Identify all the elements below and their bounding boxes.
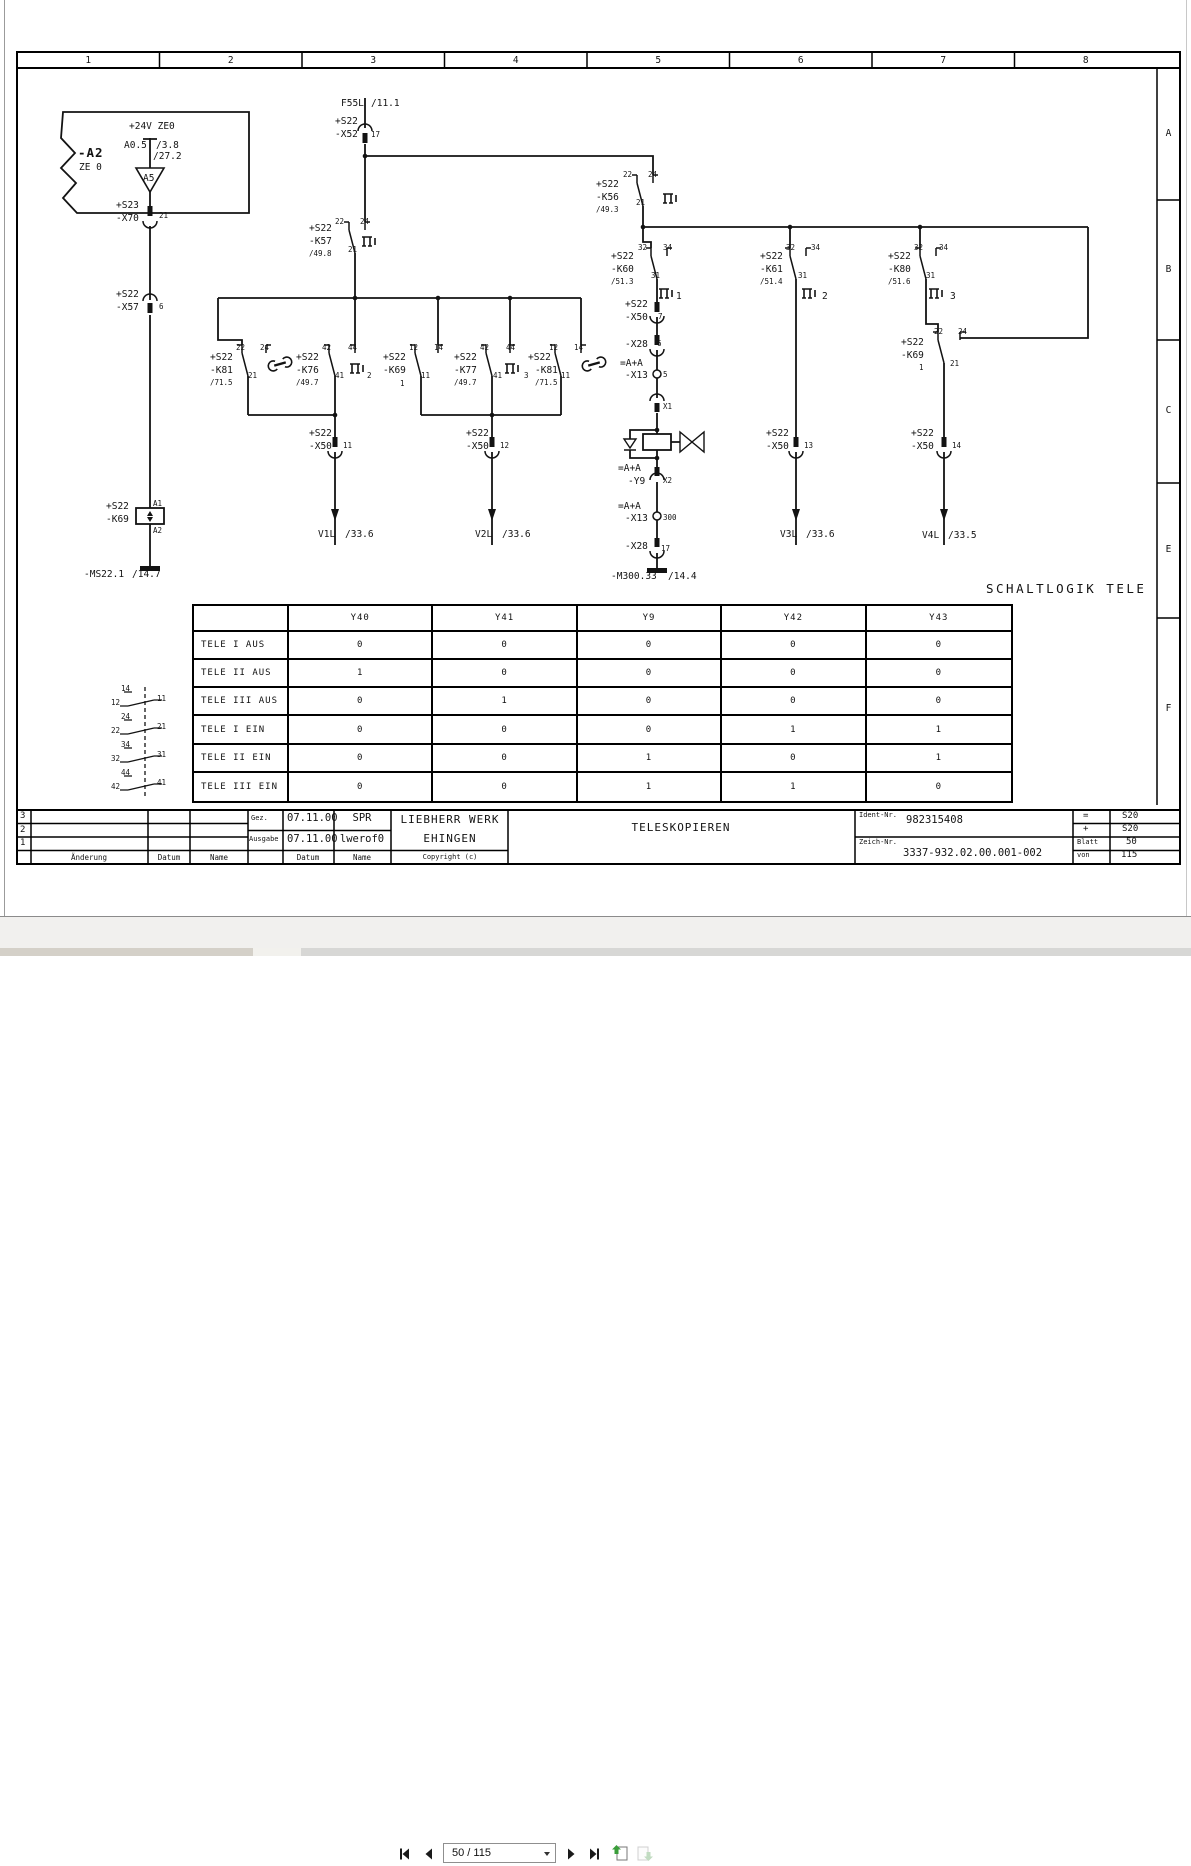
schematic-label: +S22	[383, 353, 406, 363]
ident-label: Ident-Nr.	[859, 812, 897, 819]
schematic-label: 5	[663, 371, 668, 379]
schematic-label: 32	[786, 244, 795, 252]
frame-column-5: 5	[587, 53, 730, 67]
schematic-label: V1L	[318, 530, 335, 540]
schematic-label: 24	[260, 344, 269, 352]
schematic-label: /51.3	[611, 278, 634, 286]
schematic-label: -K57	[309, 237, 332, 247]
schematic-label: 11	[157, 695, 166, 703]
schematic-label: 22	[236, 344, 245, 352]
frame-row-E: E	[1158, 544, 1179, 555]
schematic-label: -K61	[760, 265, 783, 275]
datum-header: Datum	[158, 854, 181, 862]
schematic-label: /49.7	[296, 379, 319, 387]
schematic-label: 11	[561, 372, 570, 380]
plus-label: +	[1083, 825, 1088, 834]
schematic-label: +S22	[766, 429, 789, 439]
schematic-label: -X28	[625, 542, 648, 552]
page-number-combobox[interactable]: 50 / 115	[443, 1843, 556, 1863]
logic-table-cell: 0	[433, 632, 577, 660]
revision-number: 3	[20, 812, 25, 821]
logic-table-cell: 0	[722, 660, 866, 688]
scrollbar-thumb[interactable]	[253, 948, 301, 956]
schematic-label: +S22	[466, 429, 489, 439]
logic-table-header	[194, 606, 289, 632]
schematic-label: +S22	[454, 353, 477, 363]
connector-symbols	[143, 124, 951, 558]
zeich-label: Zeich-Nr.	[859, 839, 897, 846]
schematic-label: 21	[159, 212, 168, 220]
logic-table-cell: 0	[289, 632, 433, 660]
schematic-label: -K69	[106, 515, 129, 525]
schematic-label: 22	[335, 218, 344, 226]
logic-table-row-label: TELE III EIN	[194, 773, 289, 801]
logic-table-cell: 0	[722, 745, 866, 773]
schematic-label: -X50	[309, 442, 332, 452]
logic-table-cell: 0	[289, 745, 433, 773]
schematic-label: V3L	[780, 530, 797, 540]
schematic-label: 44	[121, 769, 130, 777]
schematic-label: 11	[343, 442, 352, 450]
schematic-label: 24	[360, 218, 369, 226]
schematic-label: -K56	[596, 193, 619, 203]
schematic-label: 17	[371, 131, 380, 139]
logic-table-header: Y40	[289, 606, 433, 632]
schematic-label: 6	[159, 303, 164, 311]
logic-table-cell: 1	[867, 745, 1011, 773]
schematic-label: 41	[493, 372, 502, 380]
schematic-label: X1	[663, 403, 672, 411]
schematic-label: /33.5	[948, 531, 977, 541]
logic-table-cell: 0	[433, 716, 577, 744]
frame-column-3: 3	[302, 53, 445, 67]
logic-table-cell: 0	[867, 773, 1011, 801]
schematic-label: A1	[153, 500, 162, 508]
ausgabe-label: Ausgabe	[249, 836, 279, 843]
schematic-label: /27.2	[153, 152, 182, 162]
schematic-label: +S22	[116, 290, 139, 300]
schematic-label: 12	[111, 699, 120, 707]
schematic-label: 7	[658, 313, 663, 321]
schematic-label: 34	[811, 244, 820, 252]
schematic-label: 22	[934, 328, 943, 336]
schematic-label: -X50	[911, 442, 934, 452]
gez-name: SPR	[353, 813, 372, 824]
schematic-label: 41	[157, 779, 166, 787]
schematic-label: 34	[663, 244, 672, 252]
schematic-label: 12	[500, 442, 509, 450]
schematic-label: /33.6	[806, 530, 835, 540]
logic-table-cell: 0	[578, 716, 722, 744]
schematic-label: V2L	[475, 530, 492, 540]
schematic-label: 44	[506, 344, 515, 352]
scrollbar-track-left	[0, 948, 253, 956]
schematic-label: 42	[480, 344, 489, 352]
schematic-label: V4L	[922, 531, 939, 541]
schematic-label: =A+A	[618, 502, 641, 512]
schematic-label: +S22	[210, 353, 233, 363]
schematic-label: +S22	[911, 429, 934, 439]
schematic-label: -K69	[383, 366, 406, 376]
logic-table-cell: 0	[578, 688, 722, 716]
schematic-label: /49.7	[454, 379, 477, 387]
schematic-label: 21	[348, 246, 357, 254]
name-header: Name	[210, 854, 228, 862]
schematic-label: /49.3	[596, 206, 619, 214]
logic-table-cell: 0	[578, 660, 722, 688]
pdf-viewer-window: { "viewer": { "toolbar": { "page_field":…	[0, 0, 1191, 956]
first-page-button[interactable]	[397, 1846, 413, 1862]
scrollbar-track-right	[301, 948, 1191, 956]
schematic-label: 12	[409, 344, 418, 352]
schematic-label: 22	[111, 727, 120, 735]
schematic-label: -K76	[296, 366, 319, 376]
schematic-label: 21	[950, 360, 959, 368]
schematic-label: 3	[950, 292, 956, 302]
schaltlogik-title: SCHALTLOGIK TELE	[986, 581, 1146, 596]
schematic-label: +S22	[296, 353, 319, 363]
ausgabe-datum: 07.11.00	[287, 834, 338, 845]
logic-table-row-label: TELE I AUS	[194, 632, 289, 660]
schematic-label: 1	[400, 380, 405, 388]
schematic-label: /71.5	[210, 379, 233, 387]
schematic-label: +S22	[309, 429, 332, 439]
logic-table-cell: 0	[289, 773, 433, 801]
frame-column-6: 6	[730, 53, 873, 67]
schematic-label: +S22	[309, 224, 332, 234]
schematic-label: 14	[952, 442, 961, 450]
schematic-label: 1	[919, 364, 924, 372]
von-label: von	[1077, 852, 1090, 859]
logic-table-cell: 0	[578, 632, 722, 660]
last-page-button[interactable]	[586, 1846, 602, 1862]
schematic-label: +S22	[596, 180, 619, 190]
frame-column-7: 7	[872, 53, 1015, 67]
schematic-label: +S22	[625, 300, 648, 310]
aenderung-header: Änderung	[71, 854, 107, 862]
schematic-label: -X70	[116, 214, 139, 224]
ausgabe-name: lwerof0	[340, 834, 384, 845]
blatt-value: 50	[1126, 838, 1137, 847]
frame-row-A: A	[1158, 128, 1179, 139]
logic-table-row-label: TELE I EIN	[194, 716, 289, 744]
schematic-label: -K77	[454, 366, 477, 376]
schematic-label: 32	[914, 244, 923, 252]
schematic-label: -M300.33	[611, 572, 657, 582]
schematic-label: X2	[663, 477, 672, 485]
schematic-label: -X28	[625, 340, 648, 350]
schematic-label: 14	[574, 344, 583, 352]
logic-table-cell: 0	[433, 773, 577, 801]
schematic-label: -Y9	[628, 477, 645, 487]
schematic-label: +S22	[106, 502, 129, 512]
logic-table-header: Y43	[867, 606, 1011, 632]
blatt-label: Blatt	[1077, 839, 1098, 846]
schematic-label: =A+A	[618, 464, 641, 474]
schematic-label: 31	[157, 751, 166, 759]
logic-table-cell: 0	[867, 660, 1011, 688]
logic-table-cell: 1	[867, 716, 1011, 744]
previous-page-button[interactable]	[421, 1846, 437, 1862]
schematic-label: 17	[661, 545, 670, 553]
logic-table-row-label: TELE II EIN	[194, 745, 289, 773]
schematic-label: 24	[121, 713, 130, 721]
schematic-label: -MS22.1	[84, 570, 124, 580]
schematic-label: F55L	[341, 99, 364, 109]
logic-table-header: Y41	[433, 606, 577, 632]
datum-col-label: Datum	[297, 854, 320, 862]
schematic-label: 11	[421, 372, 430, 380]
logic-table-cell: 0	[722, 688, 866, 716]
frame-row-F: F	[1158, 703, 1179, 714]
company-line2: EHINGEN	[423, 833, 476, 844]
schematic-label: 42	[322, 344, 331, 352]
logic-table-cell: 1	[722, 716, 866, 744]
schematic-label: +S22	[760, 252, 783, 262]
schematic-label: /33.6	[502, 530, 531, 540]
logic-table-cell: 0	[722, 632, 866, 660]
schematic-label: -X50	[466, 442, 489, 452]
schematic-label: 24	[648, 171, 657, 179]
schematic-label: +S22	[335, 117, 358, 127]
schematic-label: +S22	[528, 353, 551, 363]
schematic-label: 24	[958, 328, 967, 336]
schematic-label: 44	[348, 344, 357, 352]
ground-symbols	[140, 566, 667, 573]
schematic-label: -A2	[78, 147, 104, 160]
schematic-label: -X57	[116, 303, 139, 313]
schematic-label: -X13	[625, 371, 648, 381]
schematic-label: /14.7	[132, 570, 161, 580]
logic-table-cell: 1	[578, 745, 722, 773]
schematic-label: 22	[623, 171, 632, 179]
schematic-label: 12	[549, 344, 558, 352]
schematic-label: -X50	[625, 313, 648, 323]
logic-table-row-label: TELE III AUS	[194, 688, 289, 716]
schematic-label: 6	[657, 340, 662, 348]
schematic-label: -K81	[535, 366, 558, 376]
revision-number: 2	[20, 826, 25, 835]
schematic-label: -X52	[335, 130, 358, 140]
logic-table-cell: 1	[289, 660, 433, 688]
page-edge-right	[1186, 0, 1187, 916]
frame-column-2: 2	[160, 53, 303, 67]
schematic-label: +24V ZE0	[129, 122, 175, 132]
logic-table-cell: 0	[289, 716, 433, 744]
eq-label: =	[1083, 812, 1088, 821]
schematic-label: 14	[121, 685, 130, 693]
next-view-button[interactable]	[635, 1844, 655, 1862]
schematic-label: 31	[926, 272, 935, 280]
logic-table-cell: 0	[433, 660, 577, 688]
frame-row-B: B	[1158, 264, 1179, 275]
schematic-label: -K60	[611, 265, 634, 275]
schematic-label: -X50	[766, 442, 789, 452]
schematic-label: /33.6	[345, 530, 374, 540]
logic-table-row-label: TELE II AUS	[194, 660, 289, 688]
schematic-label: +S22	[888, 252, 911, 262]
next-page-button[interactable]	[563, 1846, 579, 1862]
schematic-label: ZE 0	[79, 163, 102, 173]
schematic-label: -K69	[901, 351, 924, 361]
schematic-label: -K81	[210, 366, 233, 376]
company-line1: LIEBHERR WERK	[400, 814, 499, 825]
page-edge-left	[4, 0, 5, 916]
von-value: 115	[1121, 851, 1137, 860]
schematic-label: /51.4	[760, 278, 783, 286]
gez-label: Gez.	[251, 815, 268, 822]
logic-table-header: Y42	[722, 606, 866, 632]
schematic-label: /71.5	[535, 379, 558, 387]
previous-view-button[interactable]	[610, 1844, 630, 1862]
ident-value: 982315408	[906, 815, 963, 826]
frame-column-8: 8	[1015, 53, 1158, 67]
schematic-label: +S22	[901, 338, 924, 348]
schematic-label: 300	[663, 514, 677, 522]
logic-table: Y40Y41Y9Y42Y43TELE I AUS00000TELE II AUS…	[192, 604, 1013, 803]
schematic-label: A2	[153, 527, 162, 535]
name-col-label: Name	[353, 854, 371, 862]
schematic-label: +S22	[611, 252, 634, 262]
logic-table-cell: 1	[722, 773, 866, 801]
schematic-label: 2	[367, 372, 372, 380]
logic-table-cell: 1	[578, 773, 722, 801]
schematic-label: -K80	[888, 265, 911, 275]
schematic-label: /11.1	[371, 99, 400, 109]
sheet-title: TELESKOPIEREN	[631, 822, 730, 833]
logic-table-cell: 1	[433, 688, 577, 716]
eq-value: S20	[1122, 812, 1138, 821]
zeich-value: 3337-932.02.00.001-002	[903, 848, 1042, 859]
schematic-label: 21	[248, 372, 257, 380]
schematic-label: 32	[638, 244, 647, 252]
gez-datum: 07.11.00	[287, 813, 338, 824]
plus-value: S20	[1122, 825, 1138, 834]
schematic-label: 31	[798, 272, 807, 280]
schematic-label: A0.5	[124, 141, 147, 151]
logic-table-cell: 0	[433, 745, 577, 773]
frame-row-C: C	[1158, 405, 1179, 416]
revision-number: 1	[20, 839, 25, 848]
schematic-label: 21	[636, 199, 645, 207]
schematic-label: 32	[111, 755, 120, 763]
schematic-label: 13	[804, 442, 813, 450]
schematic-label: /49.8	[309, 250, 332, 258]
schematic-label: 34	[939, 244, 948, 252]
pdf-toolbar: 50 / 115	[0, 917, 1191, 948]
frame-column-1: 1	[17, 53, 160, 67]
schematic-label: 41	[335, 372, 344, 380]
copyright: Copyright (c)	[423, 854, 478, 861]
schematic-label: /51.6	[888, 278, 911, 286]
schematic-label: +S23	[116, 201, 139, 211]
schematic-label: 34	[121, 741, 130, 749]
schematic-label: 14	[434, 344, 443, 352]
schematic-label: 1	[676, 292, 682, 302]
schematic-label: 2	[822, 292, 828, 302]
schematic-label: 3	[524, 372, 529, 380]
schematic-label: -X13	[625, 514, 648, 524]
schematic-label: /14.4	[668, 572, 697, 582]
logic-table-cell: 0	[289, 688, 433, 716]
wires	[143, 98, 1088, 568]
schematic-label: A5	[143, 174, 154, 184]
schematic-label: =A+A	[620, 359, 643, 369]
schematic-label: /3.8	[156, 141, 179, 151]
logic-table-cell: 0	[867, 632, 1011, 660]
document-page: -A2ZE 0+24V ZE0A0.5/3.8/27.2A5+S23-X7021…	[0, 0, 1191, 916]
logic-table-cell: 0	[867, 688, 1011, 716]
frame-column-4: 4	[445, 53, 588, 67]
logic-table-header: Y9	[578, 606, 722, 632]
schematic-label: 21	[157, 723, 166, 731]
schematic-label: 31	[651, 272, 660, 280]
schematic-label: 42	[111, 783, 120, 791]
combobox-arrow-icon	[544, 1852, 550, 1859]
page-number-value: 50 / 115	[452, 1847, 491, 1859]
